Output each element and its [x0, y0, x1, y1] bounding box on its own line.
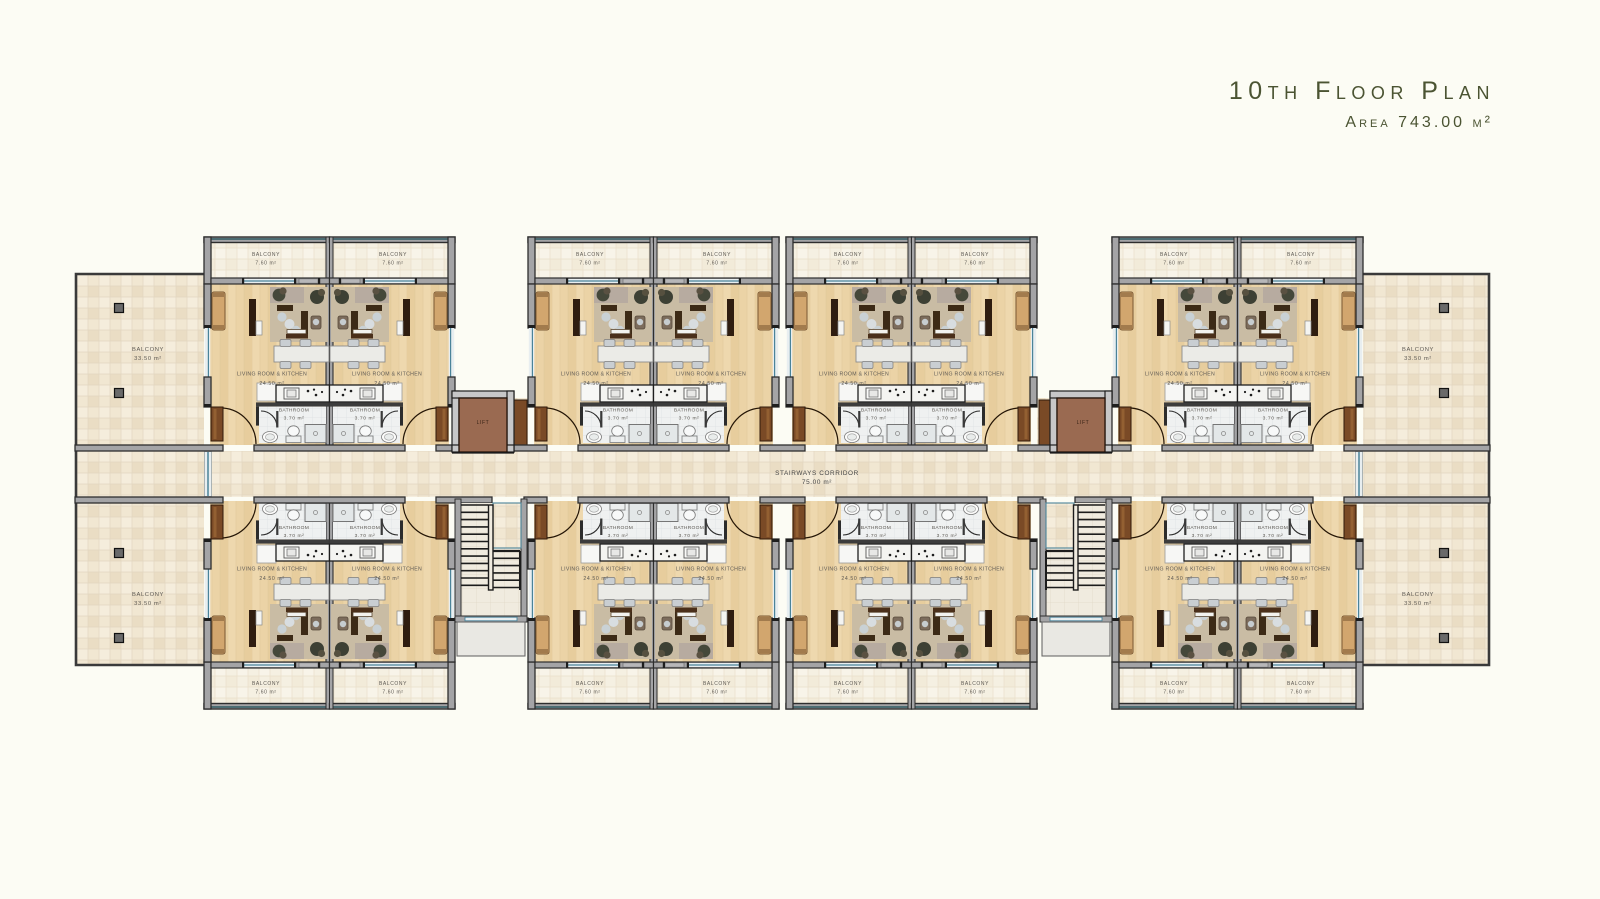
svg-text:7.60 m²: 7.60 m²	[964, 261, 985, 267]
svg-text:LIVING ROOM & KITCHEN: LIVING ROOM & KITCHEN	[1145, 372, 1215, 378]
svg-text:BALCONY: BALCONY	[379, 681, 407, 687]
svg-text:BALCONY: BALCONY	[1402, 592, 1434, 598]
svg-text:7.60 m²: 7.60 m²	[382, 690, 403, 696]
svg-text:BATHROOM: BATHROOM	[1258, 525, 1288, 531]
svg-text:BALCONY: BALCONY	[132, 592, 164, 598]
svg-text:7.60 m²: 7.60 m²	[1290, 261, 1311, 267]
svg-text:3.70 m²: 3.70 m²	[1263, 416, 1284, 422]
svg-text:BALCONY: BALCONY	[703, 681, 731, 687]
svg-text:7.60 m²: 7.60 m²	[706, 261, 727, 267]
svg-text:BALCONY: BALCONY	[252, 681, 280, 687]
svg-text:33.50 m²: 33.50 m²	[134, 601, 162, 607]
svg-text:STAIRWAYS CORRIDOR: STAIRWAYS CORRIDOR	[775, 470, 859, 477]
svg-text:LIVING ROOM & KITCHEN: LIVING ROOM & KITCHEN	[1260, 567, 1330, 573]
svg-text:24.50 m²: 24.50 m²	[1167, 576, 1192, 582]
svg-text:7.60 m²: 7.60 m²	[382, 261, 403, 267]
svg-text:24.50 m²: 24.50 m²	[956, 381, 981, 387]
svg-text:BALCONY: BALCONY	[961, 681, 989, 687]
svg-text:BALCONY: BALCONY	[379, 252, 407, 258]
svg-text:BALCONY: BALCONY	[576, 252, 604, 258]
svg-text:BATHROOM: BATHROOM	[603, 525, 633, 531]
svg-text:BALCONY: BALCONY	[834, 681, 862, 687]
svg-text:24.50 m²: 24.50 m²	[1167, 381, 1192, 387]
svg-text:BATHROOM: BATHROOM	[1187, 408, 1217, 414]
svg-text:BALCONY: BALCONY	[132, 347, 164, 353]
svg-text:LIVING ROOM & KITCHEN: LIVING ROOM & KITCHEN	[352, 567, 422, 573]
svg-text:BALCONY: BALCONY	[1402, 347, 1434, 353]
svg-text:LIVING ROOM & KITCHEN: LIVING ROOM & KITCHEN	[237, 567, 307, 573]
svg-text:BATHROOM: BATHROOM	[861, 525, 891, 531]
svg-text:3.70 m²: 3.70 m²	[679, 533, 700, 539]
svg-text:3.70 m²: 3.70 m²	[284, 533, 305, 539]
svg-text:LIVING ROOM & KITCHEN: LIVING ROOM & KITCHEN	[934, 372, 1004, 378]
svg-text:LIVING ROOM & KITCHEN: LIVING ROOM & KITCHEN	[819, 372, 889, 378]
svg-text:LIFT: LIFT	[1077, 420, 1090, 426]
svg-text:BATHROOM: BATHROOM	[603, 408, 633, 414]
svg-text:7.60 m²: 7.60 m²	[255, 261, 276, 267]
svg-text:24.50 m²: 24.50 m²	[841, 381, 866, 387]
svg-text:BALCONY: BALCONY	[1160, 681, 1188, 687]
svg-text:75.00 m²: 75.00 m²	[802, 479, 832, 486]
svg-text:3.70 m²: 3.70 m²	[284, 416, 305, 422]
svg-text:BATHROOM: BATHROOM	[674, 525, 704, 531]
svg-text:BALCONY: BALCONY	[703, 252, 731, 258]
svg-text:LIVING ROOM & KITCHEN: LIVING ROOM & KITCHEN	[676, 567, 746, 573]
svg-text:BALCONY: BALCONY	[252, 252, 280, 258]
svg-text:LIVING ROOM & KITCHEN: LIVING ROOM & KITCHEN	[561, 567, 631, 573]
svg-text:3.70 m²: 3.70 m²	[355, 533, 376, 539]
svg-text:33.50 m²: 33.50 m²	[1404, 356, 1432, 362]
svg-text:7.60 m²: 7.60 m²	[964, 690, 985, 696]
svg-text:BATHROOM: BATHROOM	[1187, 525, 1217, 531]
svg-text:3.70 m²: 3.70 m²	[937, 416, 958, 422]
svg-text:Area 743.00 m²: Area 743.00 m²	[1345, 114, 1493, 131]
svg-text:3.70 m²: 3.70 m²	[866, 416, 887, 422]
svg-text:BALCONY: BALCONY	[961, 252, 989, 258]
svg-text:BATHROOM: BATHROOM	[279, 408, 309, 414]
svg-text:3.70 m²: 3.70 m²	[679, 416, 700, 422]
svg-text:33.50 m²: 33.50 m²	[134, 356, 162, 362]
svg-text:3.70 m²: 3.70 m²	[608, 416, 629, 422]
svg-text:24.50 m²: 24.50 m²	[956, 576, 981, 582]
svg-text:7.60 m²: 7.60 m²	[1163, 690, 1184, 696]
svg-text:7.60 m²: 7.60 m²	[579, 690, 600, 696]
svg-text:BATHROOM: BATHROOM	[1258, 408, 1288, 414]
svg-text:7.60 m²: 7.60 m²	[837, 690, 858, 696]
svg-text:LIVING ROOM & KITCHEN: LIVING ROOM & KITCHEN	[676, 372, 746, 378]
svg-text:3.70 m²: 3.70 m²	[1263, 533, 1284, 539]
svg-text:BALCONY: BALCONY	[1287, 252, 1315, 258]
svg-text:BALCONY: BALCONY	[1287, 681, 1315, 687]
svg-text:BATHROOM: BATHROOM	[674, 408, 704, 414]
svg-text:24.50 m²: 24.50 m²	[583, 381, 608, 387]
svg-text:BATHROOM: BATHROOM	[861, 408, 891, 414]
svg-text:3.70 m²: 3.70 m²	[1192, 533, 1213, 539]
svg-text:BALCONY: BALCONY	[576, 681, 604, 687]
svg-text:LIVING ROOM & KITCHEN: LIVING ROOM & KITCHEN	[352, 372, 422, 378]
svg-text:LIVING ROOM & KITCHEN: LIVING ROOM & KITCHEN	[934, 567, 1004, 573]
svg-text:24.50 m²: 24.50 m²	[374, 576, 399, 582]
svg-text:7.60 m²: 7.60 m²	[837, 261, 858, 267]
svg-text:33.50 m²: 33.50 m²	[1404, 601, 1432, 607]
svg-text:7.60 m²: 7.60 m²	[255, 690, 276, 696]
svg-text:7.60 m²: 7.60 m²	[1163, 261, 1184, 267]
svg-text:3.70 m²: 3.70 m²	[1192, 416, 1213, 422]
svg-text:3.70 m²: 3.70 m²	[355, 416, 376, 422]
svg-text:BATHROOM: BATHROOM	[932, 525, 962, 531]
svg-text:24.50 m²: 24.50 m²	[374, 381, 399, 387]
svg-text:LIVING ROOM & KITCHEN: LIVING ROOM & KITCHEN	[561, 372, 631, 378]
svg-text:7.60 m²: 7.60 m²	[706, 690, 727, 696]
svg-text:24.50 m²: 24.50 m²	[583, 576, 608, 582]
svg-text:BATHROOM: BATHROOM	[350, 408, 380, 414]
svg-text:LIVING ROOM & KITCHEN: LIVING ROOM & KITCHEN	[1260, 372, 1330, 378]
svg-text:LIVING ROOM & KITCHEN: LIVING ROOM & KITCHEN	[1145, 567, 1215, 573]
svg-text:24.50 m²: 24.50 m²	[698, 381, 723, 387]
svg-text:24.50 m²: 24.50 m²	[841, 576, 866, 582]
svg-text:BATHROOM: BATHROOM	[279, 525, 309, 531]
svg-text:BATHROOM: BATHROOM	[350, 525, 380, 531]
svg-text:24.50 m²: 24.50 m²	[1282, 381, 1307, 387]
svg-text:LIVING ROOM & KITCHEN: LIVING ROOM & KITCHEN	[819, 567, 889, 573]
svg-text:BATHROOM: BATHROOM	[932, 408, 962, 414]
svg-text:24.50 m²: 24.50 m²	[259, 381, 284, 387]
svg-text:3.70 m²: 3.70 m²	[937, 533, 958, 539]
svg-text:BALCONY: BALCONY	[1160, 252, 1188, 258]
svg-text:BALCONY: BALCONY	[834, 252, 862, 258]
svg-text:7.60 m²: 7.60 m²	[1290, 690, 1311, 696]
svg-text:3.70 m²: 3.70 m²	[608, 533, 629, 539]
svg-text:LIVING ROOM & KITCHEN: LIVING ROOM & KITCHEN	[237, 372, 307, 378]
svg-text:24.50 m²: 24.50 m²	[1282, 576, 1307, 582]
svg-text:LIFT: LIFT	[477, 420, 490, 426]
svg-text:3.70 m²: 3.70 m²	[866, 533, 887, 539]
svg-text:24.50 m²: 24.50 m²	[698, 576, 723, 582]
svg-text:10th Floor Plan: 10th Floor Plan	[1229, 77, 1495, 105]
svg-text:24.50 m²: 24.50 m²	[259, 576, 284, 582]
svg-text:7.60 m²: 7.60 m²	[579, 261, 600, 267]
